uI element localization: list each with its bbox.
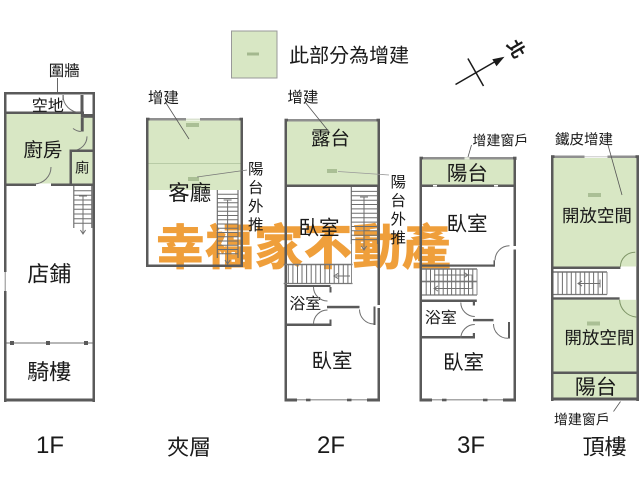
svg-text:3F: 3F	[457, 432, 485, 459]
svg-text:1F: 1F	[36, 432, 64, 459]
svg-text:2F: 2F	[317, 432, 345, 459]
